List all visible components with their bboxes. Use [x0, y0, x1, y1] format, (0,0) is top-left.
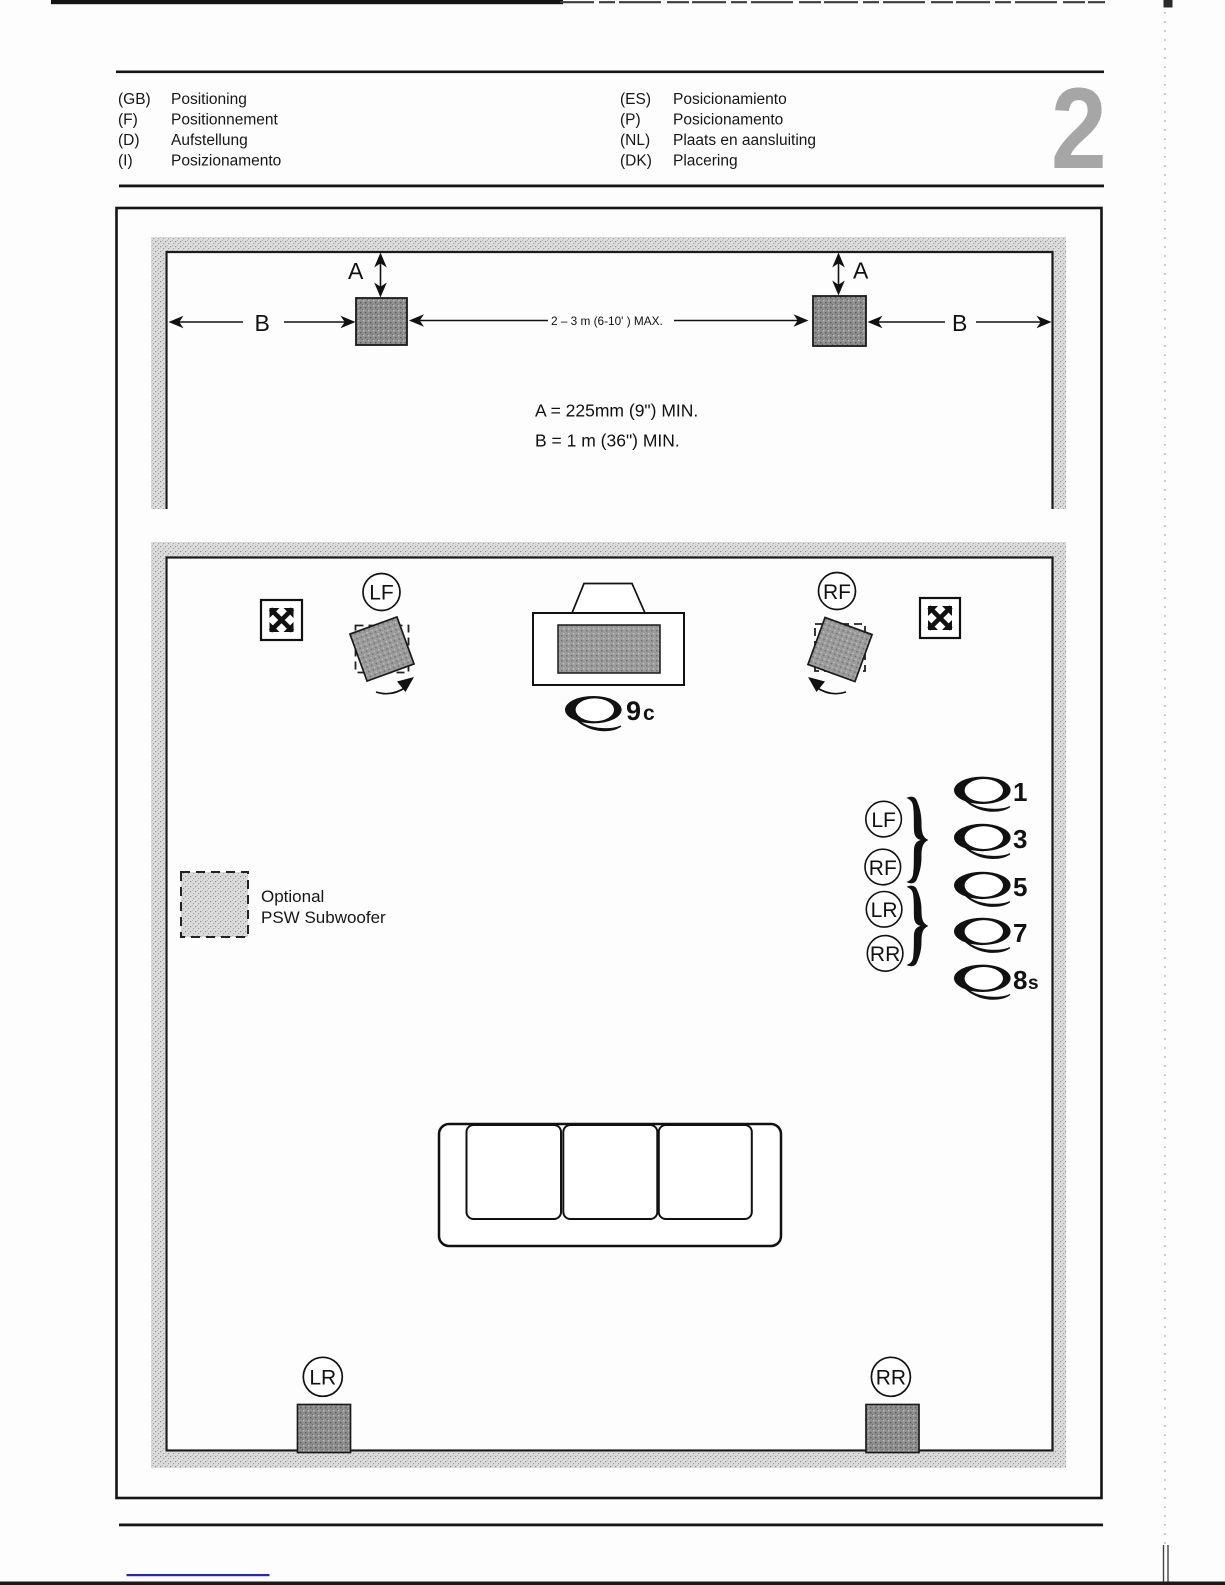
- svg-text:s: s: [1028, 973, 1039, 994]
- svg-text:7: 7: [1013, 918, 1027, 948]
- svg-text:Aufstellung: Aufstellung: [171, 132, 248, 149]
- svg-text:c: c: [643, 702, 655, 725]
- svg-text:Posicionamento: Posicionamento: [673, 112, 783, 129]
- svg-text:3: 3: [1013, 824, 1027, 854]
- svg-text:(P): (P): [620, 112, 641, 129]
- svg-text:(NL): (NL): [620, 132, 650, 149]
- svg-text:A: A: [853, 258, 869, 284]
- svg-text:RR: RR: [876, 1367, 906, 1390]
- svg-text:LR: LR: [871, 899, 898, 922]
- svg-text:Placering: Placering: [673, 153, 738, 170]
- svg-text:A: A: [348, 258, 364, 284]
- svg-text:Optional: Optional: [261, 887, 324, 906]
- svg-text:B: B: [952, 310, 967, 336]
- svg-text:(I): (I): [118, 153, 133, 170]
- svg-text:(GB): (GB): [118, 91, 151, 108]
- svg-text:8: 8: [1013, 965, 1027, 995]
- svg-text:RR: RR: [870, 943, 900, 966]
- svg-text:2 – 3 m (6-10' ) MAX.: 2 – 3 m (6-10' ) MAX.: [551, 314, 663, 328]
- svg-text:Posicionamiento: Posicionamiento: [673, 91, 787, 108]
- svg-text:Plaats en aansluiting: Plaats en aansluiting: [673, 132, 816, 149]
- svg-text:(F): (F): [118, 112, 138, 129]
- svg-text:Posizionamento: Posizionamento: [171, 153, 281, 170]
- svg-text:9: 9: [626, 696, 641, 726]
- svg-text:(DK): (DK): [620, 153, 652, 170]
- svg-text:RF: RF: [869, 857, 897, 880]
- svg-text:RF: RF: [823, 581, 851, 604]
- svg-text:2: 2: [1051, 63, 1107, 192]
- svg-text:(D): (D): [118, 132, 140, 149]
- svg-text:1: 1: [1013, 777, 1027, 807]
- svg-text:PSW Subwoofer: PSW Subwoofer: [261, 908, 386, 927]
- svg-text:LF: LF: [369, 581, 394, 604]
- svg-text:Positionnement: Positionnement: [171, 112, 279, 129]
- svg-text:Positioning: Positioning: [171, 91, 247, 108]
- svg-text:(ES): (ES): [620, 91, 651, 108]
- svg-text:LR: LR: [309, 1367, 336, 1390]
- svg-text:5: 5: [1013, 872, 1027, 902]
- svg-text:LF: LF: [871, 809, 896, 832]
- svg-text:B = 1 m (36") MIN.: B = 1 m (36") MIN.: [535, 431, 680, 451]
- svg-text:B: B: [255, 310, 270, 336]
- svg-text:A = 225mm (9") MIN.: A = 225mm (9") MIN.: [535, 401, 698, 421]
